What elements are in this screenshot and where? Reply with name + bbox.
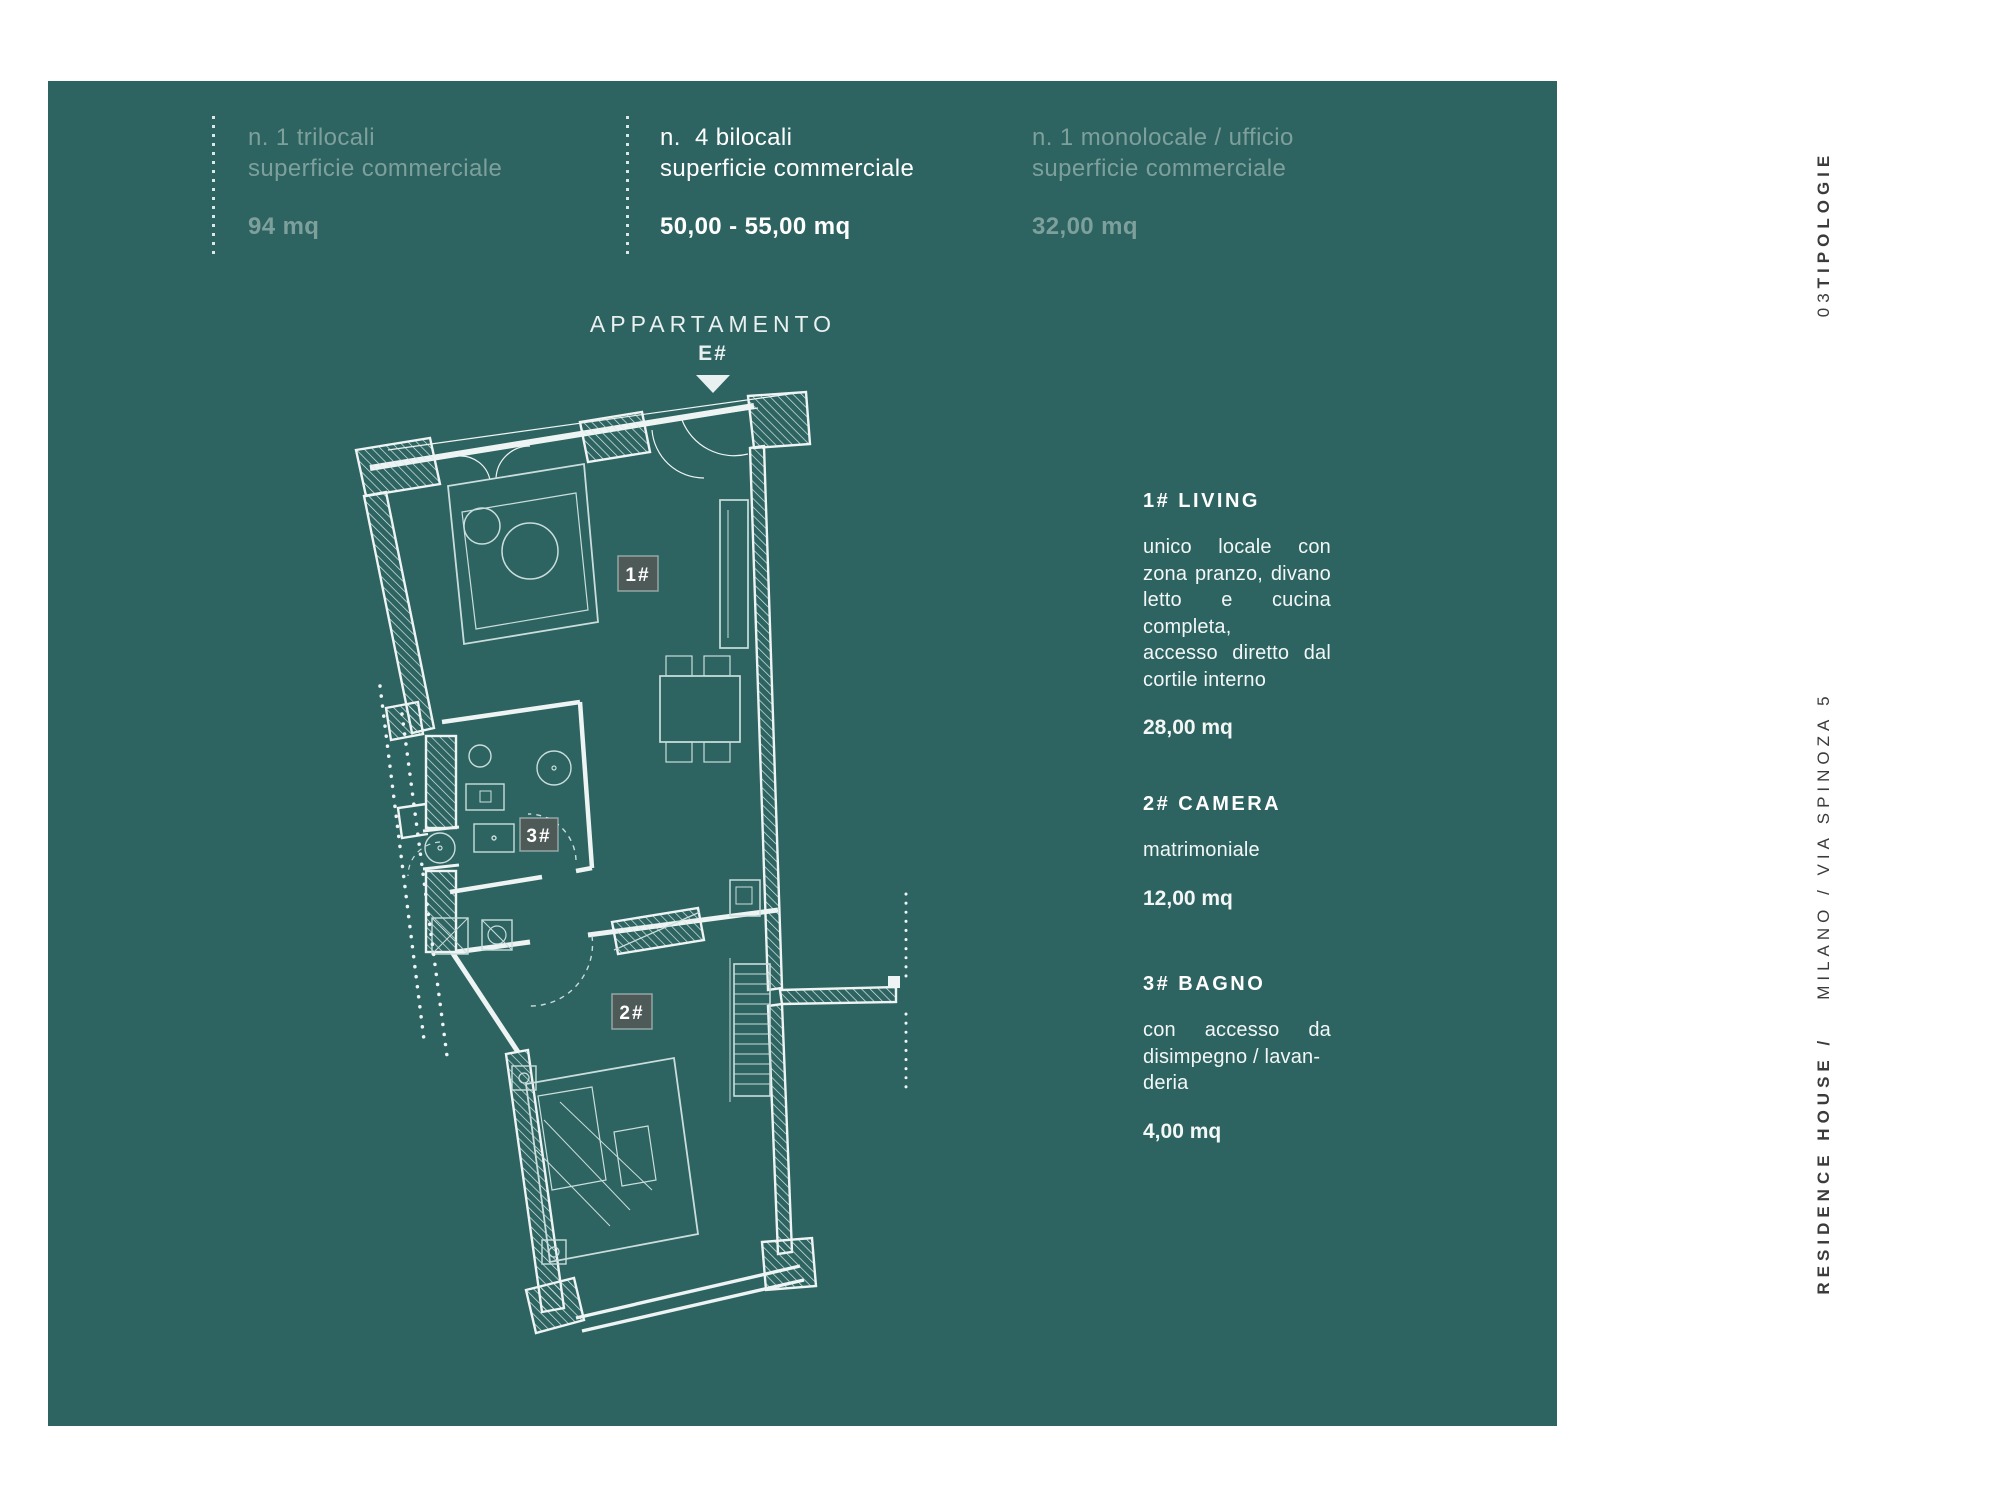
dotted-separator-2 <box>626 116 629 254</box>
detail-body: matrimoniale <box>1143 837 1331 864</box>
typology-column-bilocali: n. 4 bilocali superficie commerciale 50,… <box>660 122 1020 242</box>
apartment-unit: E# <box>555 342 871 366</box>
detail-section-camera: 2# CAMERA matrimoniale 12,00 mq <box>1143 793 1331 911</box>
apartment-heading: APPARTAMENTO E# <box>555 311 871 393</box>
room-label-text: 1# <box>625 565 650 586</box>
stairs <box>730 958 770 1102</box>
typology-area: 94 mq <box>248 211 608 242</box>
section-name: TIPOLOGIE <box>1814 151 1834 289</box>
room-label-text: 3# <box>526 826 551 847</box>
brand-name: RESIDENCE HOUSE / <box>1814 1036 1834 1295</box>
typology-count: n. 1 trilocali <box>248 122 608 153</box>
typology-subtitle: superficie commerciale <box>1032 153 1432 184</box>
typology-column-monolocale: n. 1 monolocale / ufficio superficie com… <box>1032 122 1432 242</box>
room-label-camera: 2# <box>612 994 652 1029</box>
detail-title: 2# CAMERA <box>1143 793 1331 816</box>
typology-area: 32,00 mq <box>1032 211 1432 242</box>
detail-section-bagno: 3# BAGNO con accesso da disimpegno / lav… <box>1143 973 1331 1144</box>
detail-section-living: 1# LIVING unico locale con zona pranzo, … <box>1143 490 1331 740</box>
floor-plan: 1# 2# 3# <box>330 390 920 1350</box>
typology-subtitle: superficie commerciale <box>660 153 1020 184</box>
detail-body: con accesso da disimpegno / lavan- deria <box>1143 1017 1331 1097</box>
apartment-title: APPARTAMENTO <box>555 311 871 338</box>
brand-vertical-label: RESIDENCE HOUSE /MILANO / VIA SPINOZA 5 <box>1811 643 1837 1343</box>
room-label-bagno: 3# <box>520 818 558 851</box>
detail-title: 1# LIVING <box>1143 490 1331 513</box>
brand-address: MILANO / VIA SPINOZA 5 <box>1814 691 1834 999</box>
detail-area: 28,00 mq <box>1143 716 1331 740</box>
room-label-text: 2# <box>619 1003 644 1024</box>
section-number: 03 <box>1814 288 1834 317</box>
dotted-separator-1 <box>212 116 215 254</box>
furniture-living <box>448 464 760 916</box>
room-label-living: 1# <box>618 556 658 591</box>
detail-title: 3# BAGNO <box>1143 973 1331 996</box>
typology-area: 50,00 - 55,00 mq <box>660 211 1020 242</box>
detail-body: unico locale con zona pranzo, divano let… <box>1143 534 1331 693</box>
typology-column-trilocali: n. 1 trilocali superficie commerciale 94… <box>248 122 608 242</box>
detail-area: 4,00 mq <box>1143 1120 1331 1144</box>
typology-count: n. 4 bilocali <box>660 122 1020 153</box>
typology-count: n. 1 monolocale / ufficio <box>1032 122 1432 153</box>
bathroom-walls <box>442 702 778 954</box>
typology-subtitle: superficie commerciale <box>248 153 608 184</box>
brochure-page: { "colors": { "panel_bg": "#2d6360", "mu… <box>0 0 2000 1501</box>
detail-area: 12,00 mq <box>1143 887 1331 911</box>
page-section-label: 03 TIPOLOGIE <box>1812 149 1836 319</box>
